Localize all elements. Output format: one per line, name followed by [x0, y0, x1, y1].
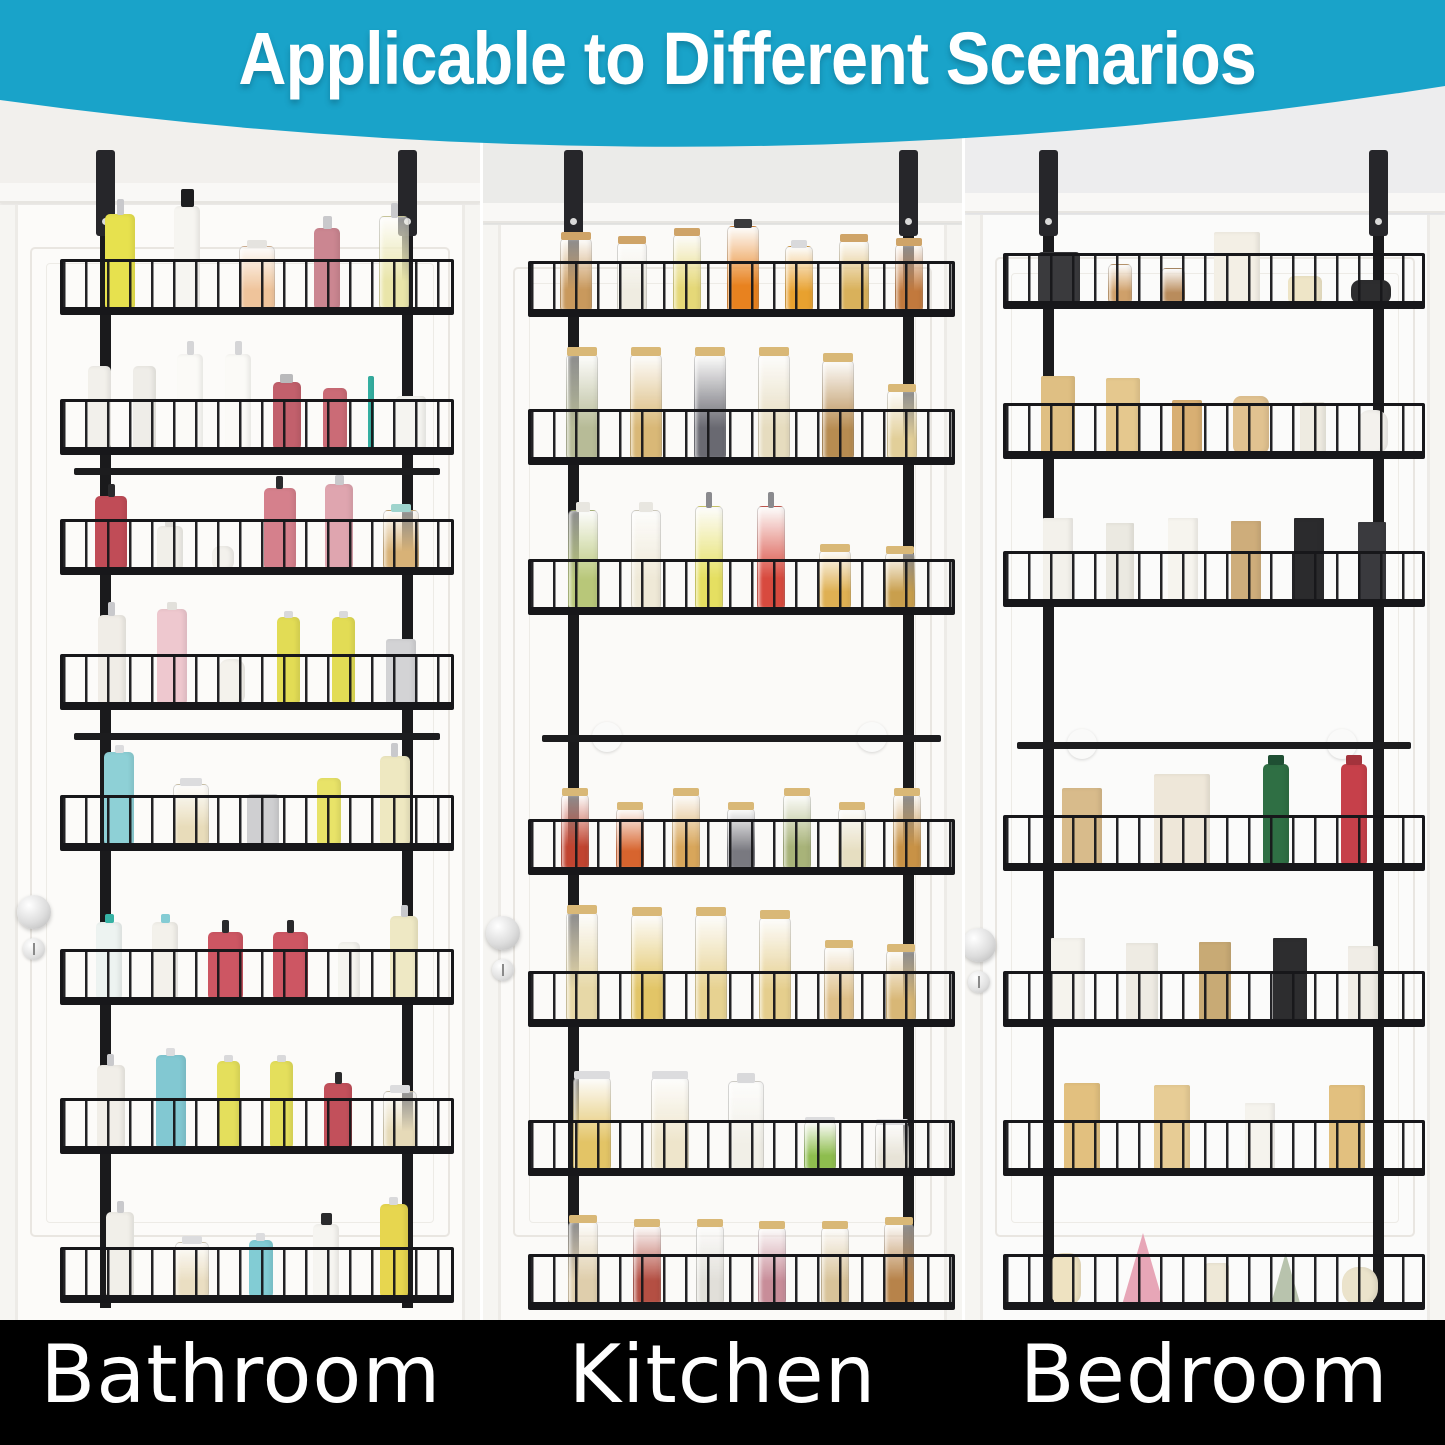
item-cap: [284, 611, 293, 618]
door-casing-right: [1429, 215, 1445, 1321]
rack-shelf: [528, 819, 955, 875]
item-cap: [105, 914, 114, 923]
bracket-screw: [905, 218, 912, 225]
item-cap: [760, 910, 790, 919]
item-cap: [791, 240, 807, 248]
item-cap: [117, 199, 124, 215]
rack-shelf: [528, 409, 955, 465]
item-cap: [180, 778, 202, 786]
wire-basket: [528, 409, 955, 465]
rack-shelf: [1003, 1254, 1425, 1310]
rack-shelf: [60, 519, 454, 575]
item-cap: [569, 1215, 597, 1223]
item-cap: [167, 602, 177, 610]
item-cap: [673, 788, 699, 796]
wire-basket: [60, 259, 454, 315]
wire-basket: [1003, 1120, 1425, 1176]
item-cap: [222, 920, 229, 933]
wire-basket: [528, 819, 955, 875]
rack-shelf: [1003, 253, 1425, 309]
item-cap: [617, 802, 643, 810]
rack-shelf: [1003, 403, 1425, 459]
rack-shelf: [60, 1247, 454, 1303]
item-cap: [181, 189, 194, 207]
item-cap: [339, 611, 348, 618]
crown-molding: [483, 203, 963, 223]
wire-basket: [60, 399, 454, 455]
item-cap: [1268, 755, 1284, 765]
item-cap: [321, 1213, 332, 1225]
rack-shelf: [528, 1254, 955, 1310]
door-knob: [17, 895, 51, 929]
door-lock: [492, 959, 514, 981]
item-cap: [187, 341, 194, 355]
item-cap: [759, 1221, 785, 1229]
wire-basket: [1003, 971, 1425, 1027]
item-cap: [696, 907, 726, 916]
item-cap: [391, 203, 398, 218]
rack-shelf: [60, 654, 454, 710]
rack-crossbar: [74, 468, 440, 475]
item-cap: [335, 475, 344, 485]
rack-shelf: [60, 1098, 454, 1154]
item-cap: [567, 347, 597, 356]
item-cap: [108, 484, 115, 497]
wire-basket: [60, 519, 454, 575]
scene-label-bedroom: Bedroom: [963, 1328, 1445, 1421]
item-cap: [391, 504, 411, 512]
item-cap: [631, 347, 661, 356]
rack-crossbar: [74, 733, 440, 740]
item-cap: [737, 1073, 755, 1083]
item-cap: [107, 1054, 114, 1066]
item-cap: [888, 384, 916, 392]
rack-shelf: [1003, 551, 1425, 607]
rack-shelf: [528, 971, 955, 1027]
item-cap: [695, 347, 725, 356]
door-casing-left: [965, 215, 981, 1321]
rack-shelf: [528, 261, 955, 317]
item-cap: [823, 353, 853, 362]
item-cap: [574, 1071, 610, 1079]
wire-basket: [528, 1120, 955, 1176]
door-knob: [486, 916, 520, 950]
rack-shelf: [1003, 1120, 1425, 1176]
wire-basket: [1003, 253, 1425, 309]
item-cap: [840, 234, 868, 242]
wire-basket: [1003, 1254, 1425, 1310]
door-casing-left: [483, 225, 499, 1321]
item-cap: [634, 1219, 660, 1227]
wire-basket: [528, 1254, 955, 1310]
product-image: Applicable to Different Scenarios Bathro…: [0, 0, 1445, 1445]
caption-bar: Bathroom Kitchen Bedroom: [0, 1320, 1445, 1445]
bracket-screw: [570, 218, 577, 225]
wire-basket: [60, 1098, 454, 1154]
item-cap: [652, 1071, 688, 1079]
item-cap: [117, 1201, 124, 1213]
wire-basket: [60, 795, 454, 851]
item-cap: [820, 544, 850, 552]
item-cap: [894, 788, 920, 796]
item-cap: [839, 802, 865, 810]
wire-basket: [528, 261, 955, 317]
item-cap: [561, 232, 591, 240]
item-cap: [401, 905, 408, 917]
door-casing-left: [0, 205, 16, 1321]
door-casing-right: [464, 205, 480, 1321]
item-cap: [108, 602, 115, 616]
item-cap: [896, 238, 922, 246]
scene-label-kitchen: Kitchen: [482, 1328, 964, 1421]
rack-shelf: [60, 259, 454, 315]
item-cap: [576, 502, 590, 512]
item-cap: [277, 1055, 286, 1062]
item-cap: [161, 914, 170, 923]
scene-label-bathroom: Bathroom: [0, 1328, 482, 1421]
scenario-photo-strip: [0, 0, 1445, 1321]
rack-shelf: [1003, 971, 1425, 1027]
item-cap: [632, 907, 662, 916]
rack-crossbar: [1017, 742, 1411, 749]
item-cap: [247, 240, 267, 248]
rack-shelf: [60, 949, 454, 1005]
item-cap: [335, 1072, 342, 1084]
rack-crossbar: [542, 735, 941, 742]
rack-shelf: [60, 795, 454, 851]
item-cap: [734, 219, 752, 228]
item-cap: [822, 1221, 848, 1229]
rack-shelf: [1003, 815, 1425, 871]
item-cap: [887, 944, 915, 952]
item-cap: [224, 1055, 233, 1062]
wire-basket: [60, 949, 454, 1005]
item-cap: [1346, 755, 1362, 765]
item-cap: [768, 492, 774, 508]
item-cap: [759, 347, 789, 356]
item-cap: [391, 743, 398, 757]
item-cap: [886, 546, 914, 554]
photo-panel-bedroom: [965, 0, 1445, 1321]
wire-basket: [1003, 551, 1425, 607]
item-cap: [674, 228, 700, 236]
item-cap: [235, 341, 242, 355]
item-cap: [825, 940, 853, 948]
item-cap: [885, 1217, 913, 1225]
rack-shelf: [528, 1120, 955, 1176]
item-cap: [276, 476, 283, 489]
wire-basket: [60, 654, 454, 710]
item-cap: [784, 788, 810, 796]
item-cap: [567, 905, 597, 914]
item-cap: [182, 1236, 202, 1244]
wire-basket: [1003, 403, 1425, 459]
item-cap: [166, 1048, 175, 1056]
item-cap: [323, 216, 332, 229]
rack-shelf: [60, 399, 454, 455]
item-cap: [389, 1197, 398, 1205]
door-lock: [23, 938, 45, 960]
item-cap: [618, 236, 646, 244]
item-cap: [287, 920, 294, 933]
item-cap: [562, 788, 588, 796]
wire-basket: [1003, 815, 1425, 871]
wire-basket: [528, 971, 955, 1027]
rack-shelf: [528, 559, 955, 615]
item-cap: [390, 1085, 410, 1093]
item-cap: [115, 745, 124, 753]
wire-basket: [60, 1247, 454, 1303]
item-cap: [280, 374, 293, 383]
photo-panel-kitchen: [483, 0, 963, 1321]
item-cap: [639, 502, 653, 512]
item-cap: [706, 492, 712, 508]
wire-basket: [528, 559, 955, 615]
item-cap: [697, 1219, 723, 1227]
item-cap: [728, 802, 754, 810]
photo-panel-bathroom: [0, 0, 480, 1321]
item-cap: [256, 1233, 265, 1241]
